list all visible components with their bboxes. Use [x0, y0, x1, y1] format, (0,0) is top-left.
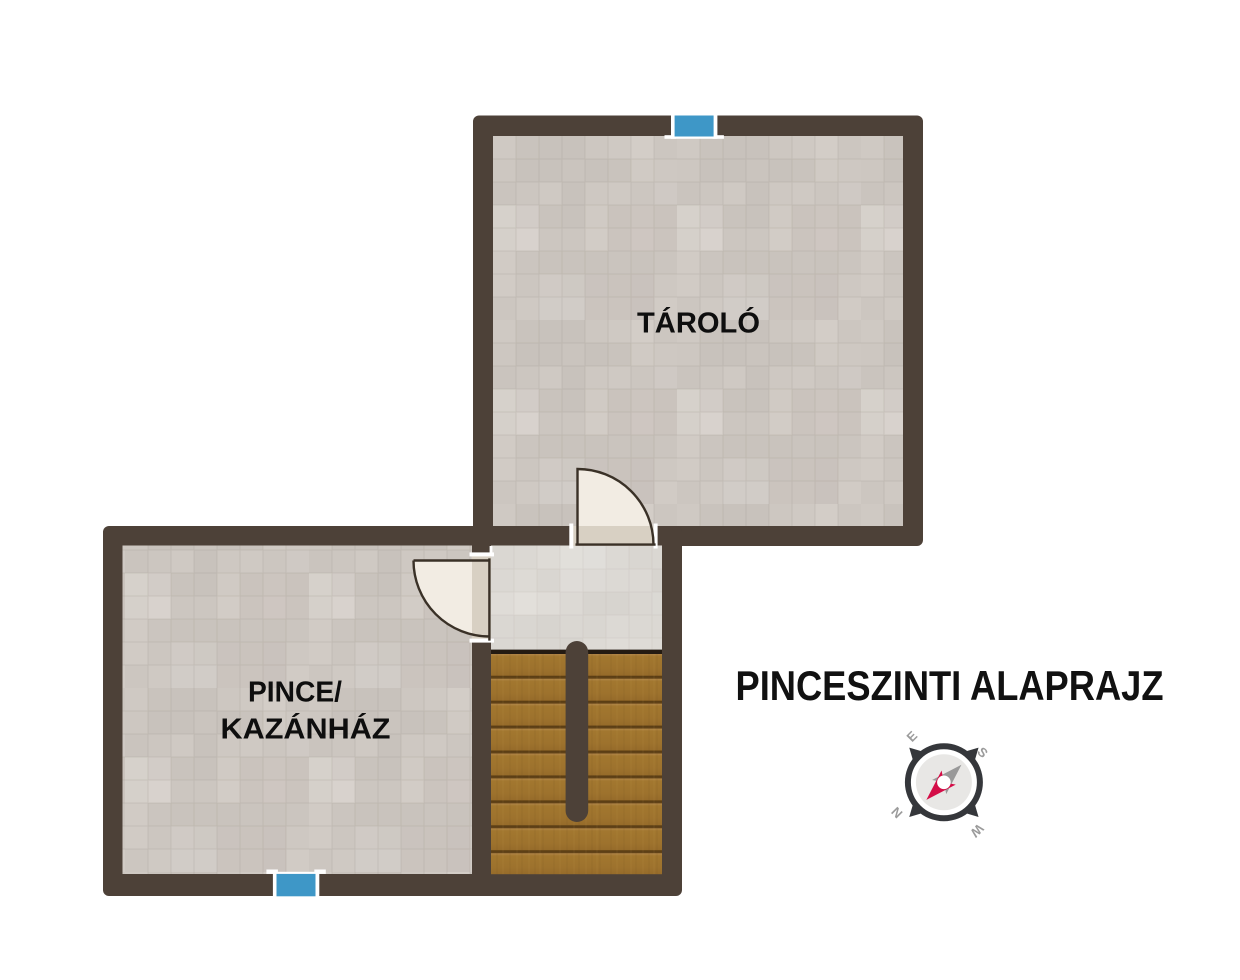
svg-text:PINCESZINTI ALAPRAJZ: PINCESZINTI ALAPRAJZ	[736, 662, 1164, 709]
svg-text:KAZÁNHÁZ: KAZÁNHÁZ	[221, 712, 391, 746]
svg-text:TÁROLÓ: TÁROLÓ	[637, 306, 760, 340]
svg-text:PINCE/: PINCE/	[248, 677, 342, 709]
